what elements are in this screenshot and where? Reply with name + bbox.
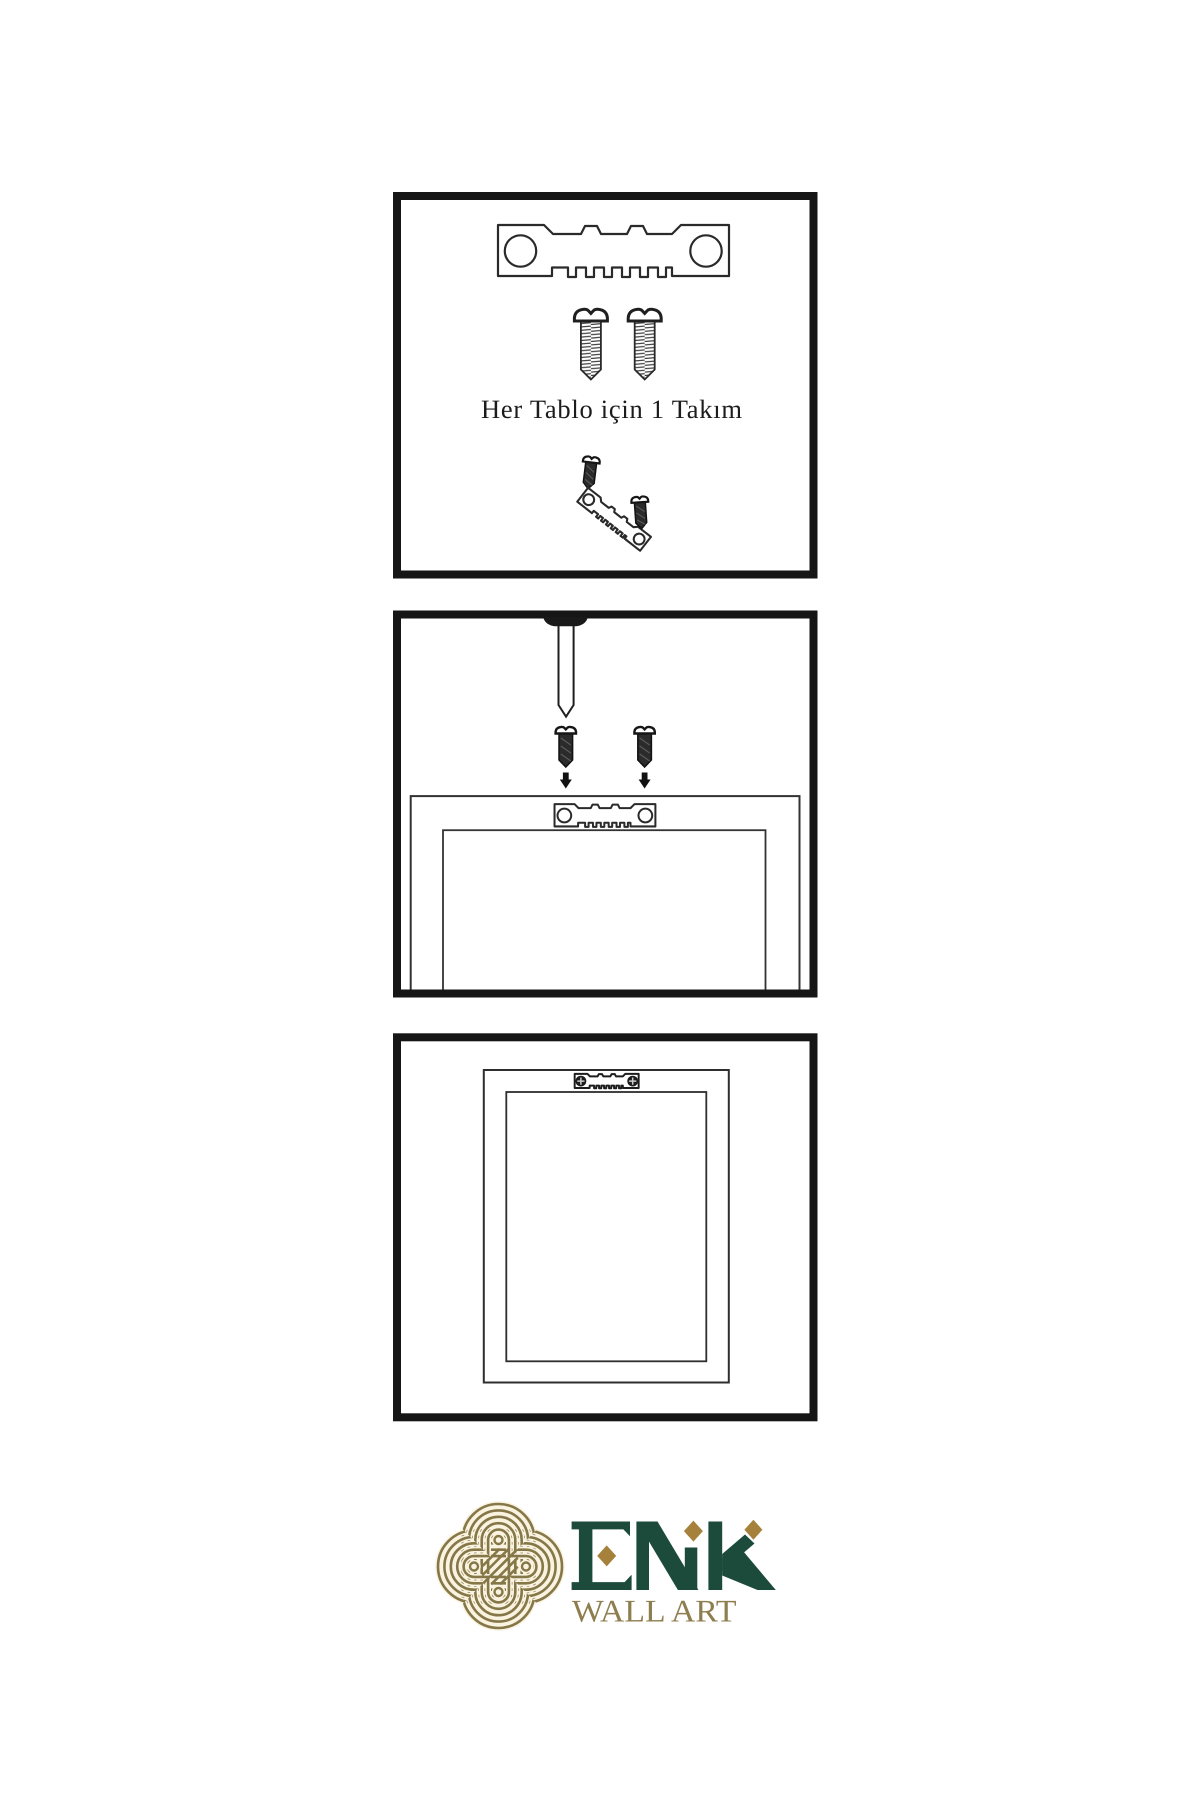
svg-text:WALL ART: WALL ART	[572, 1594, 737, 1629]
svg-text:Her Tablo için 1 Takım: Her Tablo için 1 Takım	[481, 394, 742, 424]
